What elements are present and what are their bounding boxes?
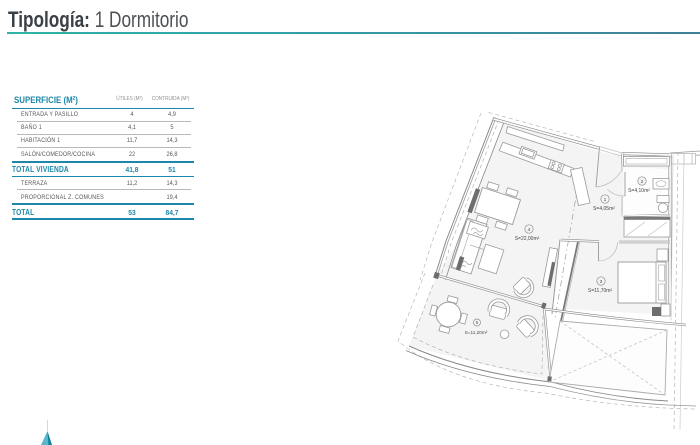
- svg-text:4: 4: [528, 227, 531, 233]
- svg-text:S=4,10m²: S=4,10m²: [628, 188, 650, 194]
- svg-text:S=4,05m²: S=4,05m²: [593, 206, 615, 212]
- svg-text:1: 1: [604, 197, 607, 203]
- svg-text:2: 2: [641, 179, 644, 185]
- svg-text:S=11,20m²: S=11,20m²: [465, 330, 488, 335]
- svg-text:S=22,00m²: S=22,00m²: [515, 236, 540, 242]
- svg-text:S=11,70m²: S=11,70m²: [588, 288, 613, 294]
- svg-text:3: 3: [600, 279, 603, 285]
